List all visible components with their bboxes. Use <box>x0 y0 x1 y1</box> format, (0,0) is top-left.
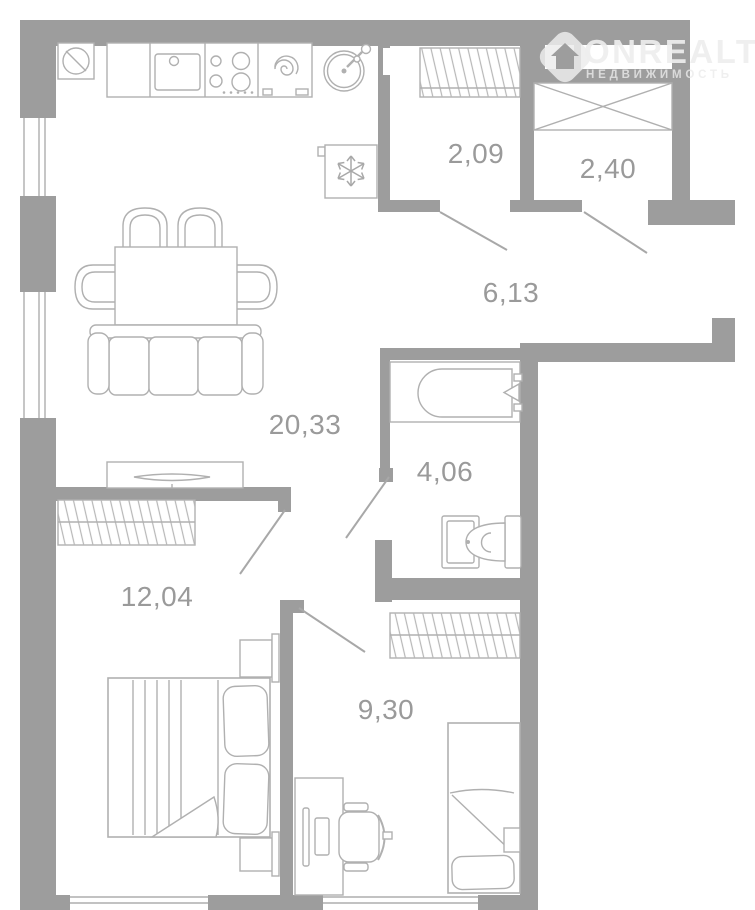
window-bottom-child-room <box>323 894 478 910</box>
window-left-kitchen <box>20 118 56 196</box>
window-left-living <box>20 292 56 418</box>
room-area-label-bedroom: 12,04 <box>121 581 194 612</box>
door-swing-bedroom <box>240 510 285 574</box>
desk-icon <box>295 778 343 895</box>
washing-machine-icon <box>58 43 94 79</box>
room-labels: 20,33 6,13 2,09 2,40 4,06 12,04 9,30 <box>121 138 637 725</box>
door-swing-entry <box>584 212 647 253</box>
dining-table-icon <box>115 247 237 325</box>
nightstand-icon <box>240 838 276 871</box>
dining-set-icon <box>75 208 277 325</box>
closet-wardrobe-icon <box>420 48 520 97</box>
door-swing-child-room <box>299 608 365 652</box>
pillow-icon <box>223 763 269 834</box>
watermark-subtitle: НЕДВИЖИМОСТЬ <box>586 69 733 81</box>
round-sink-icon <box>324 45 371 92</box>
pillow-icon <box>452 855 515 890</box>
bathtub-icon <box>390 362 522 422</box>
bedroom-furniture <box>58 500 279 876</box>
office-chair-icon <box>339 803 392 871</box>
fridge-icon <box>318 145 377 198</box>
child-wardrobe-icon <box>390 613 520 658</box>
floor-plan: 20,33 6,13 2,09 2,40 4,06 12,04 9,30 ONR… <box>0 0 755 910</box>
room-area-label-entry: 2,40 <box>580 153 637 184</box>
window-bottom-bedroom <box>70 894 208 910</box>
monitor-icon <box>303 808 309 866</box>
room-area-label-hallway: 6,13 <box>483 277 540 308</box>
pillow-icon <box>223 685 269 756</box>
single-bed-icon <box>448 723 520 893</box>
double-bed-icon <box>108 678 270 837</box>
keyboard-icon <box>315 818 329 855</box>
room-area-label-kitchen-living: 20,33 <box>269 409 342 440</box>
bedroom-wardrobe-icon <box>58 500 195 545</box>
entry-storage-box-icon <box>534 83 672 130</box>
room-area-label-closet: 2,09 <box>448 138 505 169</box>
room-area-label-child-room: 9,30 <box>358 694 415 725</box>
child-room-furniture <box>295 613 520 895</box>
kitchen-fixtures <box>58 43 377 198</box>
floor-plan-canvas: 20,33 6,13 2,09 2,40 4,06 12,04 9,30 ONR… <box>0 0 755 910</box>
tv-stand-icon <box>107 462 243 488</box>
door-swing-bathroom <box>346 477 389 538</box>
sofa-icon <box>88 325 263 395</box>
nightstand-icon <box>240 640 272 677</box>
watermark-brand: ONREALT <box>584 33 755 70</box>
watermark: ONREALT НЕДВИЖИМОСТЬ <box>535 27 755 86</box>
room-area-label-bathroom: 4,06 <box>417 456 474 487</box>
door-swing-closet <box>440 212 507 250</box>
